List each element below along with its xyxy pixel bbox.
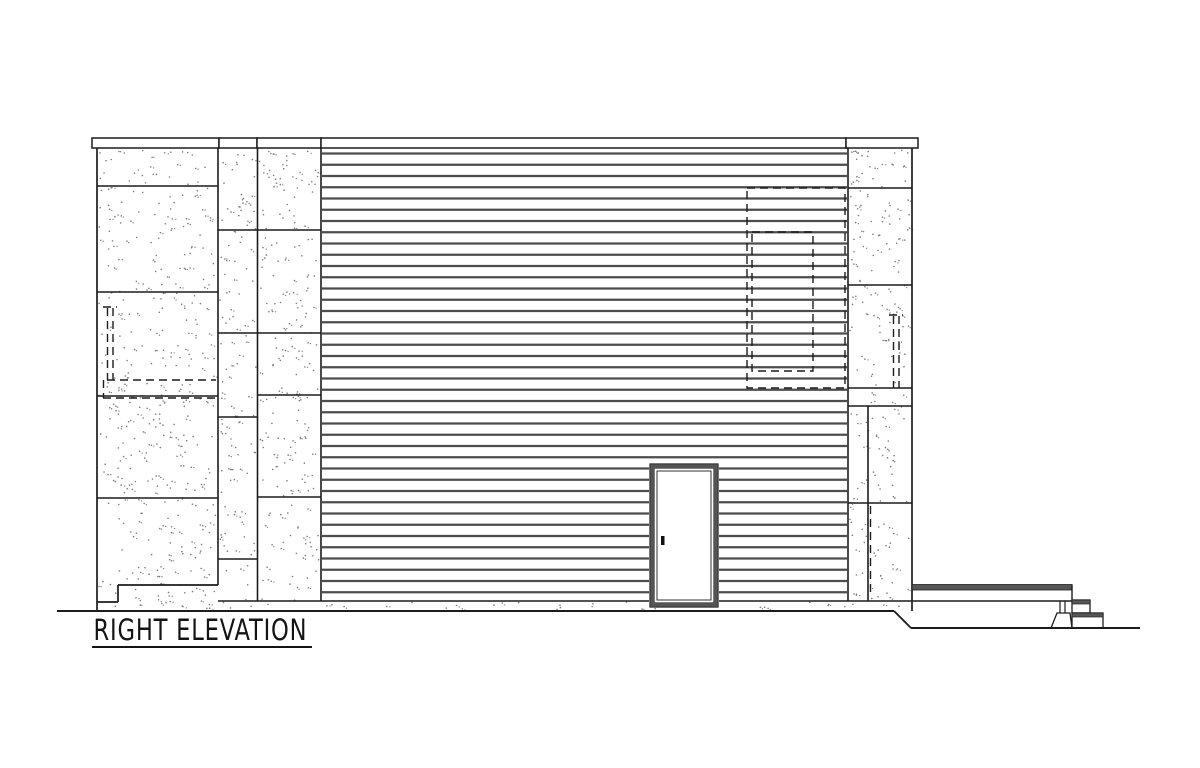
door-handle [661,536,665,545]
entry-door [649,463,719,608]
elevation-sheet: RIGHT ELEVATION [0,0,1200,768]
parapet-cap [92,138,918,148]
stone-stipple-texture [98,150,913,611]
drawing-title: RIGHT ELEVATION [92,616,312,648]
deck-and-steps [912,585,1103,629]
elevation-drawing-svg [0,0,1200,768]
siding-lines [322,154,847,593]
hidden-dashed-lines [103,188,903,596]
